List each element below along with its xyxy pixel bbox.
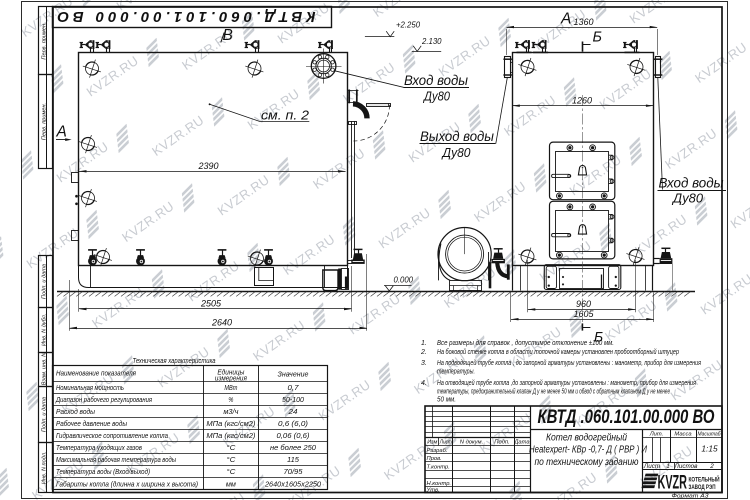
svg-text:1360: 1360	[574, 17, 594, 27]
svg-text:°С: °С	[226, 443, 236, 452]
svg-text:2.130: 2.130	[421, 37, 442, 46]
svg-text:Дата: Дата	[513, 439, 530, 445]
svg-text:ЗАВОД РЭП: ЗАВОД РЭП	[689, 484, 716, 491]
svg-text:Масса: Масса	[674, 431, 692, 437]
svg-text:На отводящей трубе котла ,до з: На отводящей трубе котла ,до запорной ар…	[437, 379, 696, 387]
svg-text:115: 115	[287, 455, 300, 464]
svg-text:24: 24	[287, 407, 297, 416]
svg-text:Температура уходящих газов: Температура уходящих газов	[56, 443, 142, 452]
svg-text:Подп.: Подп.	[494, 439, 509, 445]
svg-text:1260: 1260	[572, 96, 592, 106]
svg-text:Диапазон рабочего регулировани: Диапазон рабочего регулирования	[55, 395, 152, 404]
svg-text:Подп. и дата: Подп. и дата	[42, 264, 48, 299]
svg-text:Подп. и дата: Подп. и дата	[42, 397, 48, 432]
svg-text:Инв. N дубл.: Инв. N дубл.	[42, 314, 48, 346]
svg-text:Ду80: Ду80	[422, 89, 450, 104]
svg-text:Расход воды: Расход воды	[56, 407, 96, 416]
svg-text:Рабочее давление воды: Рабочее давление воды	[56, 419, 128, 428]
svg-text:1:15: 1:15	[701, 444, 718, 454]
svg-text:Котел водогрейный: Котел водогрейный	[546, 433, 627, 444]
svg-text:Наименование показателя: Наименование показателя	[56, 369, 136, 378]
svg-text:2: 2	[709, 463, 714, 470]
svg-text:KVZR: KVZR	[658, 472, 688, 494]
svg-text:Разраб.: Разраб.	[427, 448, 448, 454]
svg-text:по техническому заданию: по техническому заданию	[535, 457, 639, 468]
svg-text:Б: Б	[593, 30, 602, 46]
svg-text:Heatexpert- КВр -0,7- Д ( РВР: Heatexpert- КВр -0,7- Д ( РВР ) И	[529, 444, 648, 455]
svg-text:Масштаб: Масштаб	[698, 431, 722, 437]
svg-text:МВт: МВт	[224, 383, 237, 392]
svg-text:Утв.: Утв.	[426, 488, 440, 494]
svg-text:Номинальная мощность: Номинальная мощность	[56, 383, 124, 392]
svg-text:Инв. N подл.: Инв. N подл.	[42, 451, 48, 484]
svg-text:%: %	[228, 395, 233, 404]
svg-text:температуры.: температуры.	[437, 368, 475, 375]
svg-text:Т.контр.: Т.контр.	[427, 464, 450, 470]
svg-text:°С: °С	[226, 455, 236, 464]
svg-text:70/95: 70/95	[284, 467, 304, 476]
svg-text:измерения: измерения	[215, 376, 247, 383]
svg-text:Перв. примен.: Перв. примен.	[42, 22, 48, 59]
svg-text:см. п. 2: см. п. 2	[261, 108, 309, 122]
svg-text:КВТД .060.101.00.000 ВО: КВТД .060.101.00.000 ВО	[538, 407, 715, 428]
svg-text:N докум.: N докум.	[460, 439, 483, 445]
svg-text:0.000: 0.000	[394, 276, 414, 285]
svg-text:м3/ч: м3/ч	[223, 407, 238, 416]
svg-text:На боковой стенке котла в обла: На боковой стенке котла в области топочн…	[437, 348, 679, 356]
svg-text:Значение: Значение	[278, 370, 309, 379]
svg-text:А: А	[56, 123, 67, 140]
svg-text:мм: мм	[226, 479, 236, 488]
svg-text:Перв. примен.: Перв. примен.	[42, 103, 48, 140]
svg-text:Лист: Лист	[439, 439, 452, 445]
svg-text:2505: 2505	[200, 298, 222, 308]
svg-text:Габариты котла (длинна х ширин: Габариты котла (длинна х ширина х высота…	[56, 479, 198, 488]
svg-text:Листов: Листов	[674, 463, 699, 470]
svg-text:Формат А3: Формат А3	[672, 494, 710, 500]
svg-text:Лит.: Лит.	[649, 431, 664, 437]
svg-text:1.: 1.	[421, 340, 427, 347]
svg-text:Изм: Изм	[427, 439, 437, 445]
svg-text:температуры, предохранительный: температуры, предохранительный клапан Д …	[437, 387, 670, 395]
svg-text:На подводящей трубе котла ,: На подводящей трубе котла , до запорной …	[437, 359, 701, 367]
svg-text:Ду80: Ду80	[441, 145, 471, 160]
svg-text:Ду80: Ду80	[671, 190, 704, 205]
svg-text:°С: °С	[226, 467, 236, 476]
svg-text:50-100: 50-100	[282, 395, 304, 404]
svg-text:МПа (кгс/см2): МПа (кгс/см2)	[206, 431, 255, 440]
svg-text:1: 1	[666, 463, 670, 470]
svg-text:Н.контр.: Н.контр.	[427, 481, 452, 487]
svg-text:Все размеры для справок , допу: Все размеры для справок , допустимое отк…	[437, 339, 614, 347]
svg-text:1605: 1605	[573, 309, 594, 319]
svg-text:Гидравлическое сопротивление к: Гидравлическое сопротивление котла	[56, 431, 168, 440]
svg-text:0,7: 0,7	[288, 383, 300, 392]
svg-text:0,6 (6,0): 0,6 (6,0)	[278, 419, 308, 428]
svg-text:КОТЕЛЬНЫЙ: КОТЕЛЬНЫЙ	[689, 476, 720, 484]
svg-text:не более 250: не более 250	[270, 443, 316, 452]
svg-text:0,06 (0,6): 0,06 (0,6)	[277, 431, 310, 440]
svg-text:Вход воды: Вход воды	[404, 73, 468, 88]
svg-text:960: 960	[576, 299, 591, 309]
svg-text:2640: 2640	[211, 317, 232, 327]
svg-text:2390: 2390	[197, 161, 218, 171]
svg-text:Температура воды (Вход/выход): Температура воды (Вход/выход)	[56, 467, 150, 476]
svg-text:2640х1605х2250: 2640х1605х2250	[264, 479, 321, 488]
svg-text:Техническая характеристика: Техническая характеристика	[133, 356, 216, 365]
svg-text:Пров.: Пров.	[427, 456, 442, 462]
svg-text:Лист: Лист	[643, 463, 660, 470]
svg-text:Максимальная рабочая температу: Максимальная рабочая температура воды	[56, 455, 177, 464]
svg-text:Вход воды: Вход воды	[659, 175, 724, 190]
svg-text:2.: 2.	[420, 349, 427, 356]
svg-text:Взам. инв. N: Взам. инв. N	[42, 352, 48, 386]
svg-text:+2.250: +2.250	[396, 21, 421, 30]
svg-text:В: В	[223, 27, 233, 44]
svg-text:МПа (кгс/см2): МПа (кгс/см2)	[206, 419, 255, 428]
svg-text:Выход воды: Выход воды	[420, 129, 494, 144]
svg-text:3.: 3.	[421, 360, 427, 367]
svg-text:4.: 4.	[421, 380, 427, 387]
svg-text:50 мм.: 50 мм.	[437, 397, 456, 404]
svg-text:А: А	[560, 11, 571, 28]
